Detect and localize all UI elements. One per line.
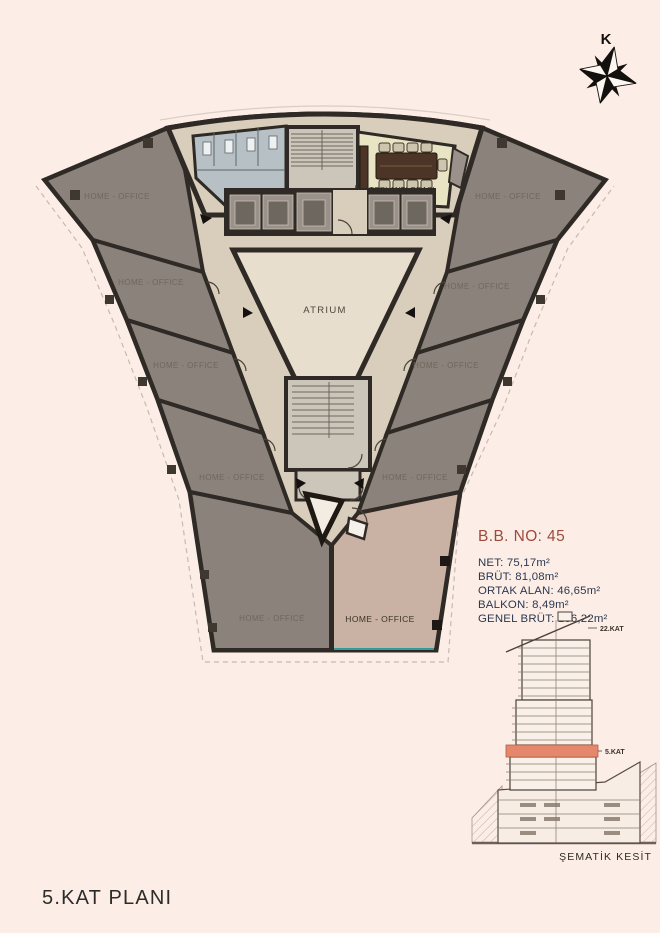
unit-label: HOME - OFFICE	[382, 473, 448, 482]
meeting-room-label: TOPLANTI ODASI	[369, 185, 435, 194]
floor-plan-sheet: HOME - OFFICE HOME - OFFICE HOME - OFFIC…	[0, 0, 660, 933]
unit-info: B.B. NO: 45 NET: 75,17m² BRÜT: 81,08m² O…	[478, 528, 608, 625]
section-current-floor-label: 5.KAT	[605, 749, 625, 756]
unit-label: HOME - OFFICE	[444, 282, 510, 291]
unit-label: HOME - OFFICE	[413, 361, 479, 370]
unit-info-line: BALKON: 8,49m²	[478, 599, 569, 611]
section-drawing: 22.KAT 5.KAT ŞEMATİK KESİT	[472, 612, 656, 863]
section-highlight-floor	[506, 745, 598, 757]
unit-info-line: ORTAK ALAN: 46,65m²	[478, 585, 600, 597]
cabinet	[360, 146, 368, 190]
unit-label: HOME - OFFICE	[84, 192, 150, 201]
floor-plan-drawing: HOME - OFFICE HOME - OFFICE HOME - OFFIC…	[0, 0, 660, 933]
unit-label: HOME - OFFICE	[118, 278, 184, 287]
unit-info-line: GENEL BRÜT: 136,22m²	[478, 613, 608, 625]
unit-label: HOME - OFFICE	[199, 473, 265, 482]
section-top-floor-label: 22.KAT	[600, 626, 624, 633]
unit-info-number: B.B. NO: 45	[478, 528, 565, 545]
north-label: K	[601, 31, 612, 48]
elevator-bank	[224, 188, 436, 236]
compass-main-points	[573, 40, 643, 110]
section-caption: ŞEMATİK KESİT	[559, 850, 652, 863]
plan-title: 5.KAT PLANI	[42, 887, 172, 909]
compass-rose: K	[573, 31, 643, 110]
unit-info-line: BRÜT: 81,08m²	[478, 571, 558, 583]
unit-label: HOME - OFFICE	[239, 614, 305, 623]
unit-label: HOME - OFFICE	[153, 361, 219, 370]
unit-label-highlighted: HOME - OFFICE	[345, 614, 414, 624]
unit-info-line: NET: 75,17m²	[478, 557, 550, 569]
elevator-cells	[230, 193, 432, 231]
unit-label: HOME - OFFICE	[475, 192, 541, 201]
atrium-label: ATRIUM	[303, 305, 347, 316]
